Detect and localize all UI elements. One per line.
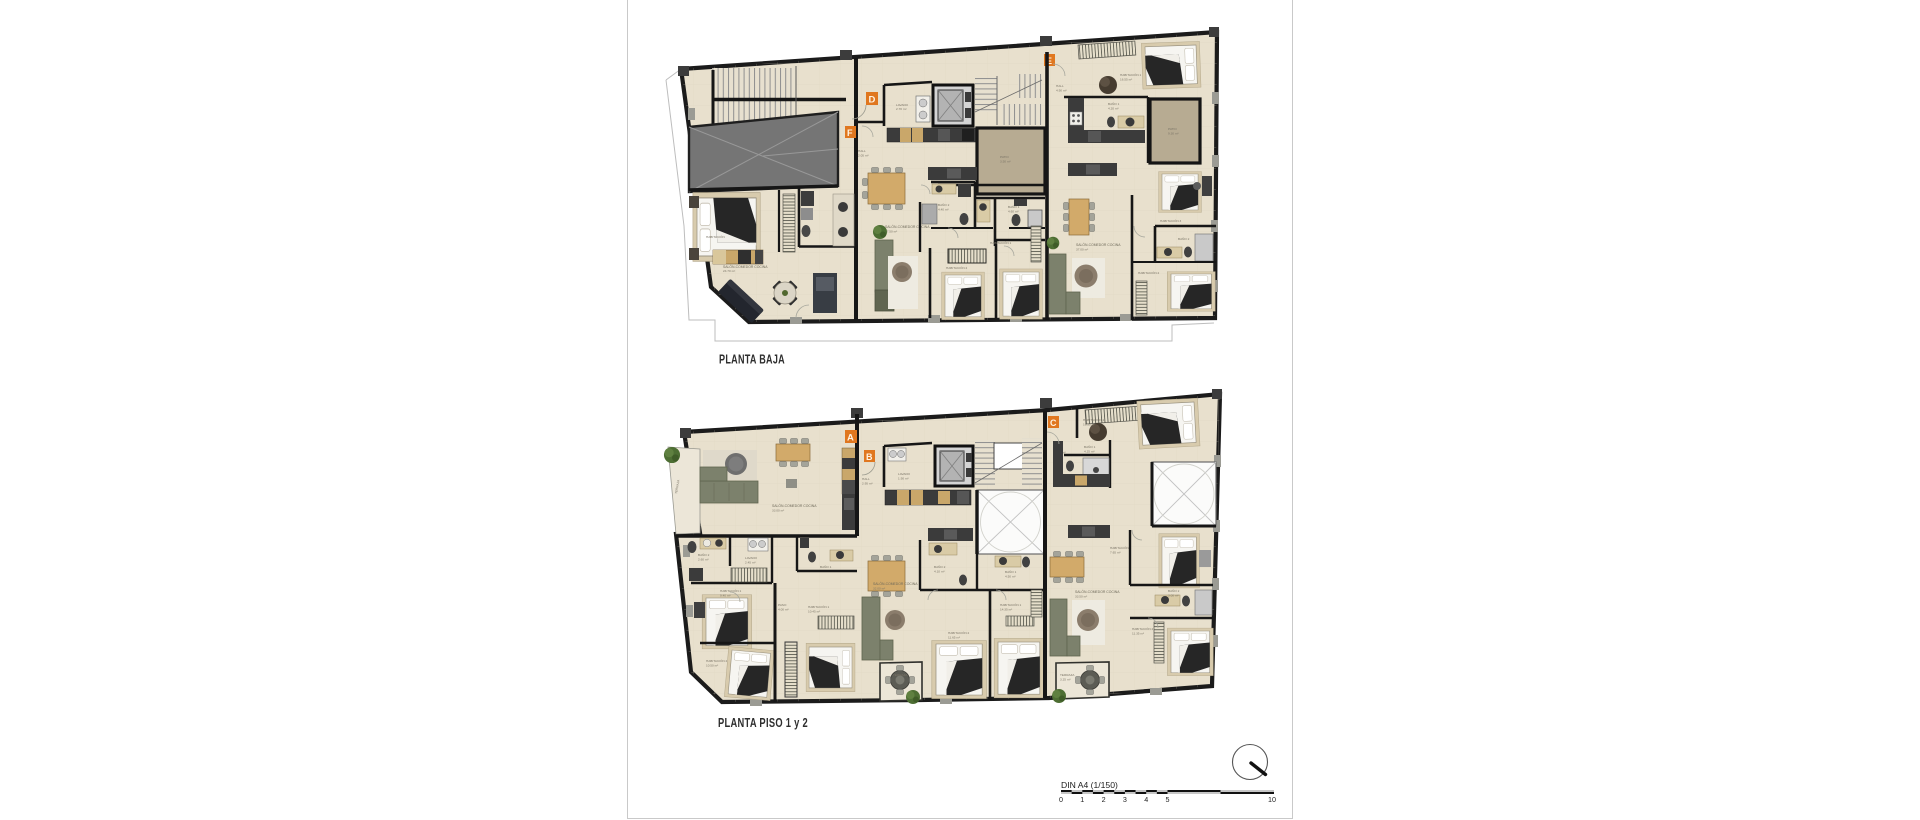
svg-text:11.35 m²: 11.35 m² — [1132, 632, 1144, 636]
svg-text:HABITACIÓN 1: HABITACIÓN 1 — [808, 604, 830, 609]
svg-text:3.50 m²: 3.50 m² — [1000, 160, 1011, 164]
svg-text:2.05 m²: 2.05 m² — [858, 154, 869, 158]
svg-text:BAÑO 1: BAÑO 1 — [1008, 204, 1020, 209]
svg-text:HABITACIÓN 1: HABITACIÓN 1 — [1110, 545, 1132, 550]
svg-text:3.25 m²: 3.25 m² — [1060, 678, 1071, 682]
svg-text:10.50 m²: 10.50 m² — [706, 664, 718, 668]
svg-text:4: 4 — [1144, 795, 1148, 804]
svg-text:PASO: PASO — [778, 603, 787, 607]
svg-text:HABITACIÓN 2: HABITACIÓN 2 — [946, 265, 968, 270]
svg-text:SALÓN-COMEDOR COCINA: SALÓN-COMEDOR COCINA — [1076, 242, 1121, 247]
svg-text:PATIO: PATIO — [1168, 127, 1177, 131]
svg-text:HALL: HALL — [1056, 84, 1064, 88]
svg-text:HABITACIÓN 2: HABITACIÓN 2 — [948, 630, 970, 635]
svg-text:1: 1 — [1080, 795, 1084, 804]
svg-text:HABITACIÓN 2: HABITACIÓN 2 — [1138, 270, 1160, 275]
svg-text:4.60 m²: 4.60 m² — [1008, 210, 1019, 214]
svg-text:HABITACIÓN 1: HABITACIÓN 1 — [1120, 72, 1142, 77]
svg-text:BAÑO 1: BAÑO 1 — [1084, 444, 1096, 449]
svg-text:0: 0 — [1059, 795, 1063, 804]
svg-text:4.25 m²: 4.25 m² — [1084, 450, 1095, 454]
svg-text:1.90 m²: 1.90 m² — [898, 477, 909, 481]
svg-text:4.20 m²: 4.20 m² — [1108, 107, 1119, 111]
svg-text:BAÑO 1: BAÑO 1 — [1005, 569, 1017, 574]
svg-text:10: 10 — [1268, 795, 1276, 804]
svg-text:16.55 m²: 16.55 m² — [1120, 78, 1132, 82]
svg-text:SALÓN-COMEDOR COCINA: SALÓN-COMEDOR COCINA — [1075, 589, 1120, 594]
svg-text:16.30 m²: 16.30 m² — [1083, 423, 1095, 427]
svg-text:14.35 m²: 14.35 m² — [1000, 608, 1012, 612]
svg-text:SALÓN-COMEDOR COCINA: SALÓN-COMEDOR COCINA — [772, 503, 817, 508]
svg-text:HABITACIÓN 2: HABITACIÓN 2 — [706, 658, 728, 663]
svg-text:BAÑO 2: BAÑO 2 — [938, 202, 950, 207]
svg-text:SALÓN-COMEDOR COCINA: SALÓN-COMEDOR COCINA — [885, 224, 930, 229]
svg-text:24.70 m²: 24.70 m² — [723, 269, 735, 273]
svg-text:3: 3 — [1123, 795, 1127, 804]
svg-text:33.50 m²: 33.50 m² — [1075, 595, 1087, 599]
svg-text:2.60 m²: 2.60 m² — [698, 558, 709, 562]
svg-text:HABITACIÓN 1: HABITACIÓN 1 — [990, 240, 1012, 245]
svg-text:33.00 m²: 33.00 m² — [772, 509, 784, 513]
svg-text:4.40 m²: 4.40 m² — [938, 208, 949, 212]
svg-text:BAÑO 1: BAÑO 1 — [1108, 101, 1120, 106]
svg-text:HABITACIÓN 2: HABITACIÓN 2 — [1132, 626, 1154, 631]
svg-text:3.00 m²: 3.00 m² — [1168, 594, 1179, 598]
svg-text:37.00 m²: 37.00 m² — [1076, 248, 1088, 252]
svg-text:BAÑO 2: BAÑO 2 — [1168, 588, 1180, 593]
svg-text:BAÑO 2: BAÑO 2 — [1178, 236, 1190, 241]
svg-text:2.95 m²: 2.95 m² — [862, 482, 873, 486]
svg-text:7.65 m²: 7.65 m² — [1110, 551, 1121, 555]
svg-text:4.90 m²: 4.90 m² — [1056, 89, 1067, 93]
svg-text:D: D — [869, 95, 876, 106]
svg-text:HABITACIÓN: HABITACIÓN — [706, 234, 725, 239]
svg-text:HABITACIÓN 1: HABITACIÓN 1 — [1000, 602, 1022, 607]
svg-text:B: B — [866, 452, 873, 462]
svg-text:BAÑO 1: BAÑO 1 — [820, 564, 832, 569]
svg-text:F: F — [847, 128, 853, 138]
svg-text:HALL: HALL — [858, 149, 866, 153]
svg-text:BAÑO 2: BAÑO 2 — [698, 552, 710, 557]
svg-text:LAVADO: LAVADO — [745, 556, 758, 560]
svg-text:11.65 m²: 11.65 m² — [948, 636, 960, 640]
svg-text:TERRAZA: TERRAZA — [893, 673, 908, 677]
svg-text:HABITACIÓN 3: HABITACIÓN 3 — [1160, 218, 1182, 223]
svg-text:HABITACIÓN 1: HABITACIÓN 1 — [1083, 417, 1105, 422]
svg-text:TERRAZA: TERRAZA — [1060, 673, 1075, 677]
svg-text:4.10 m²: 4.10 m² — [934, 570, 945, 574]
svg-text:10.45 m²: 10.45 m² — [808, 610, 820, 614]
svg-text:32.00 m²: 32.00 m² — [873, 587, 885, 591]
svg-text:2: 2 — [1102, 795, 1106, 804]
svg-text:BAÑO 2: BAÑO 2 — [934, 564, 946, 569]
svg-text:4.00 m²: 4.00 m² — [778, 608, 789, 612]
svg-text:PATIO: PATIO — [1000, 155, 1009, 159]
svg-text:2.45 m²: 2.45 m² — [745, 561, 756, 565]
svg-text:PLANTA PISO 1 y 2: PLANTA PISO 1 y 2 — [718, 716, 808, 730]
svg-text:SALÓN-COMEDOR COCINA: SALÓN-COMEDOR COCINA — [873, 581, 918, 586]
svg-text:HALL: HALL — [862, 477, 870, 481]
svg-text:5: 5 — [1166, 795, 1170, 804]
svg-text:LAVADO: LAVADO — [898, 472, 911, 476]
svg-text:2.70 m²: 2.70 m² — [896, 107, 907, 111]
svg-text:4.50 m²: 4.50 m² — [1005, 575, 1016, 579]
svg-text:9.30 m²: 9.30 m² — [1168, 132, 1179, 136]
svg-text:C: C — [1050, 418, 1057, 428]
svg-text:A: A — [847, 433, 854, 444]
svg-text:PLANTA BAJA: PLANTA BAJA — [719, 353, 785, 367]
svg-text:DIN A4 (1/150): DIN A4 (1/150) — [1061, 780, 1118, 790]
svg-text:9.40 m²: 9.40 m² — [720, 594, 731, 598]
